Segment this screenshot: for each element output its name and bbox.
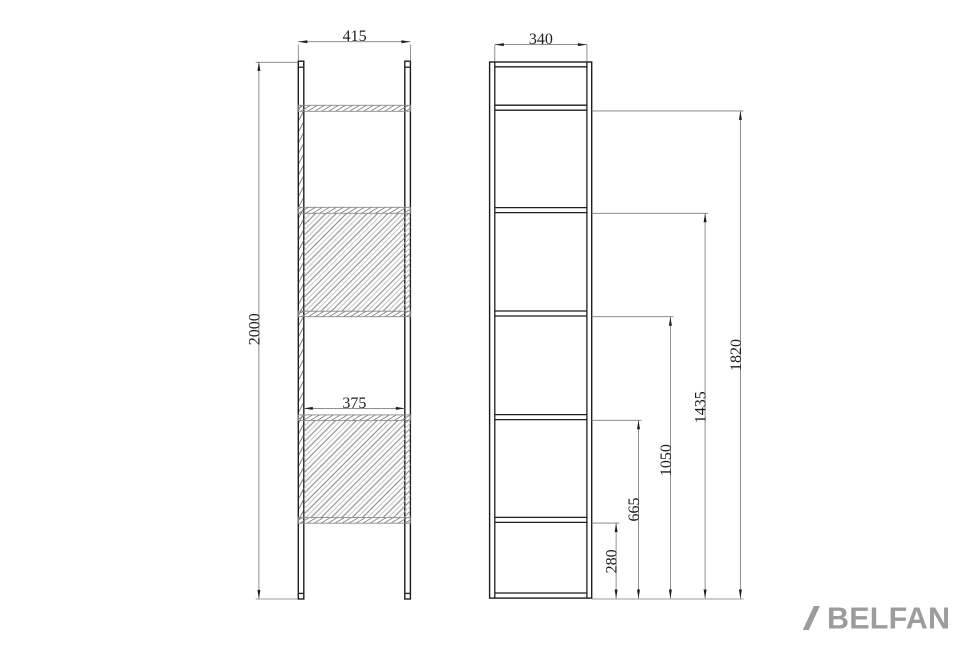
svg-text:1820: 1820 (728, 339, 745, 371)
svg-text:340: 340 (529, 31, 553, 48)
svg-text:665: 665 (626, 498, 643, 522)
svg-text:2000: 2000 (246, 313, 263, 345)
svg-text:1050: 1050 (658, 444, 675, 476)
svg-text:BELFAN: BELFAN (827, 602, 950, 636)
svg-text:280: 280 (604, 549, 621, 573)
svg-text:1435: 1435 (693, 391, 710, 423)
svg-text:415: 415 (343, 28, 367, 45)
svg-text:375: 375 (342, 395, 366, 412)
